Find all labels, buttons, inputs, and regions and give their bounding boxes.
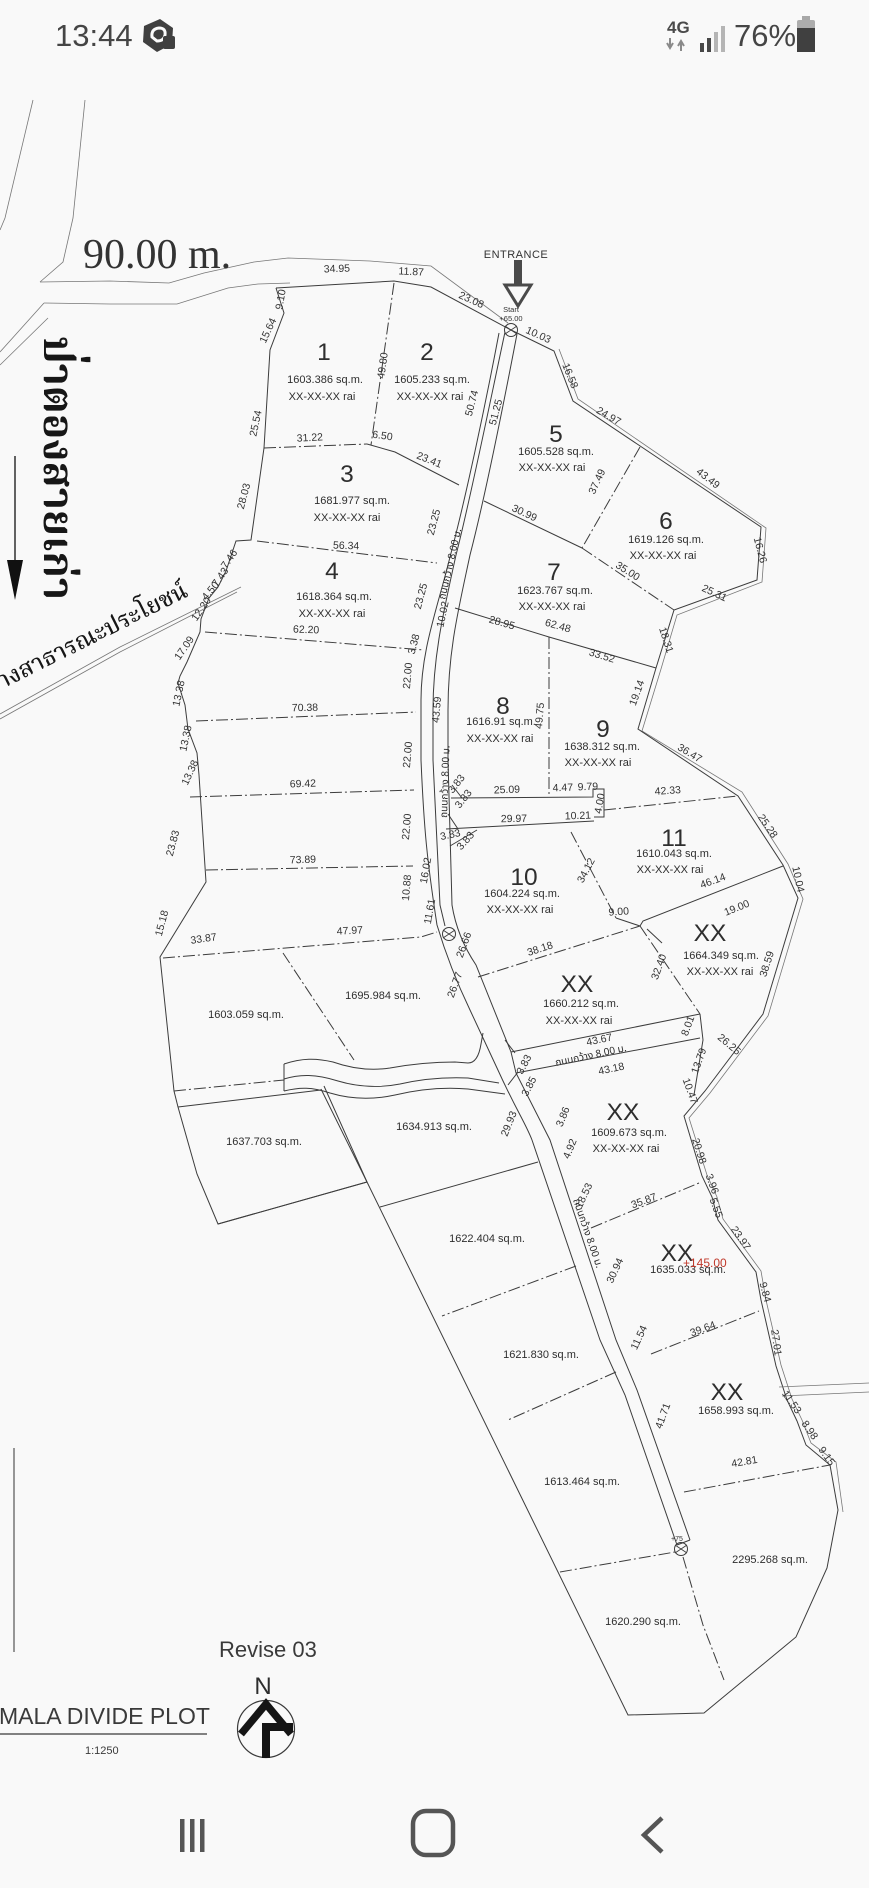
svg-text:XX-XX-XX rai: XX-XX-XX rai <box>637 864 704 876</box>
svg-text:XX-XX-XX rai: XX-XX-XX rai <box>687 966 754 978</box>
svg-text:1605.528 sq.m.: 1605.528 sq.m. <box>518 446 594 458</box>
svg-text:XX-XX-XX rai: XX-XX-XX rai <box>289 391 356 403</box>
svg-text:1603.059 sq.m.: 1603.059 sq.m. <box>208 1009 284 1021</box>
svg-text:+65.00: +65.00 <box>499 314 522 323</box>
svg-text:22.00: 22.00 <box>401 741 415 768</box>
svg-text:1658.993 sq.m.: 1658.993 sq.m. <box>698 1405 774 1417</box>
svg-text:XX-XX-XX rai: XX-XX-XX rai <box>565 757 632 769</box>
svg-text:62.20: 62.20 <box>293 624 320 637</box>
svg-text:73.89: 73.89 <box>290 854 317 867</box>
svg-text:1620.290 sq.m.: 1620.290 sq.m. <box>605 1616 681 1628</box>
svg-text:+145.00: +145.00 <box>683 1256 727 1270</box>
svg-text:+75: +75 <box>671 1536 683 1543</box>
svg-text:XX-XX-XX rai: XX-XX-XX rai <box>397 391 464 403</box>
svg-text:XX-XX-XX rai: XX-XX-XX rai <box>519 462 586 474</box>
svg-text:XX-XX-XX rai: XX-XX-XX rai <box>487 904 554 916</box>
svg-text:10.21: 10.21 <box>565 810 592 823</box>
svg-text:13:44: 13:44 <box>55 18 133 53</box>
svg-text:25.09: 25.09 <box>494 784 521 797</box>
svg-text:ENTRANCE: ENTRANCE <box>484 249 549 261</box>
svg-text:1664.349 sq.m.: 1664.349 sq.m. <box>683 950 759 962</box>
svg-text:5: 5 <box>549 421 563 448</box>
svg-text:XX-XX-XX rai: XX-XX-XX rai <box>314 512 381 524</box>
svg-text:43.59: 43.59 <box>430 696 444 723</box>
svg-text:XX: XX <box>694 920 727 947</box>
svg-text:1610.043 sq.m.: 1610.043 sq.m. <box>636 848 712 860</box>
svg-text:22.00: 22.00 <box>401 662 415 689</box>
svg-text:XX-XX-XX rai: XX-XX-XX rai <box>546 1015 613 1027</box>
svg-text:1605.233 sq.m.: 1605.233 sq.m. <box>394 374 470 386</box>
svg-text:1619.126 sq.m.: 1619.126 sq.m. <box>628 534 704 546</box>
svg-text:1695.984 sq.m.: 1695.984 sq.m. <box>345 990 421 1002</box>
svg-text:XX-XX-XX rai: XX-XX-XX rai <box>630 550 697 562</box>
svg-text:1637.703 sq.m.: 1637.703 sq.m. <box>226 1136 302 1148</box>
svg-text:9.00: 9.00 <box>608 905 629 918</box>
svg-text:9.79: 9.79 <box>577 781 598 794</box>
svg-text:1604.224 sq.m.: 1604.224 sq.m. <box>484 888 560 900</box>
svg-text:4: 4 <box>325 558 339 585</box>
svg-text:7: 7 <box>547 559 561 586</box>
svg-text:9: 9 <box>596 716 610 743</box>
svg-text:1623.767 sq.m.: 1623.767 sq.m. <box>517 585 593 597</box>
svg-text:XX-XX-XX rai: XX-XX-XX rai <box>467 733 534 745</box>
svg-text:XX: XX <box>711 1379 744 1406</box>
svg-text:1660.212 sq.m.: 1660.212 sq.m. <box>543 998 619 1010</box>
svg-text:1613.464 sq.m.: 1613.464 sq.m. <box>544 1476 620 1488</box>
svg-text:56.34: 56.34 <box>333 540 360 553</box>
svg-text:XX: XX <box>561 971 594 998</box>
svg-text:XX-XX-XX rai: XX-XX-XX rai <box>299 608 366 620</box>
svg-text:MALA DIVIDE PLOT: MALA DIVIDE PLOT <box>0 1703 210 1729</box>
svg-text:70.38: 70.38 <box>292 702 319 714</box>
svg-text:2295.268 sq.m.: 2295.268 sq.m. <box>732 1554 808 1566</box>
svg-text:76%: 76% <box>734 18 796 53</box>
svg-text:49.75: 49.75 <box>533 702 547 729</box>
svg-text:4.47: 4.47 <box>552 782 573 795</box>
svg-text:1609.673 sq.m.: 1609.673 sq.m. <box>591 1127 667 1139</box>
svg-text:4G: 4G <box>667 18 690 37</box>
svg-text:1622.404 sq.m.: 1622.404 sq.m. <box>449 1233 525 1245</box>
svg-text:3: 3 <box>340 461 354 488</box>
svg-text:6: 6 <box>659 508 673 535</box>
svg-text:1638.312 sq.m.: 1638.312 sq.m. <box>564 741 640 753</box>
svg-text:1603.386 sq.m.: 1603.386 sq.m. <box>287 374 363 386</box>
svg-text:1: 1 <box>317 339 331 366</box>
svg-text:XX-XX-XX rai: XX-XX-XX rai <box>593 1143 660 1155</box>
svg-text:XX: XX <box>607 1099 640 1126</box>
svg-text:Revise 03: Revise 03 <box>219 1637 317 1662</box>
svg-text:1618.364 sq.m.: 1618.364 sq.m. <box>296 591 372 603</box>
svg-text:10: 10 <box>510 864 537 891</box>
svg-text:1681.977 sq.m.: 1681.977 sq.m. <box>314 495 390 507</box>
svg-text:10.88: 10.88 <box>400 874 414 901</box>
svg-text:22.00: 22.00 <box>400 813 414 840</box>
svg-text:11.87: 11.87 <box>398 265 424 278</box>
svg-text:1616.91 sq.m.: 1616.91 sq.m. <box>466 716 536 728</box>
svg-text:Start: Start <box>503 305 520 314</box>
svg-text:34.95: 34.95 <box>324 263 351 276</box>
svg-text:1621.830 sq.m.: 1621.830 sq.m. <box>503 1349 579 1361</box>
svg-text:47.97: 47.97 <box>336 924 363 937</box>
svg-text:90.00 m.: 90.00 m. <box>83 232 231 278</box>
svg-text:2: 2 <box>420 339 434 366</box>
svg-text:N: N <box>254 1673 271 1700</box>
svg-text:69.42: 69.42 <box>290 778 317 791</box>
svg-text:1634.913 sq.m.: 1634.913 sq.m. <box>396 1121 472 1133</box>
svg-text:31.22: 31.22 <box>296 431 323 444</box>
svg-text:42.33: 42.33 <box>654 784 681 798</box>
svg-text:1:1250: 1:1250 <box>85 1745 119 1757</box>
svg-text:29.97: 29.97 <box>501 813 528 825</box>
svg-text:XX-XX-XX rai: XX-XX-XX rai <box>519 601 586 613</box>
